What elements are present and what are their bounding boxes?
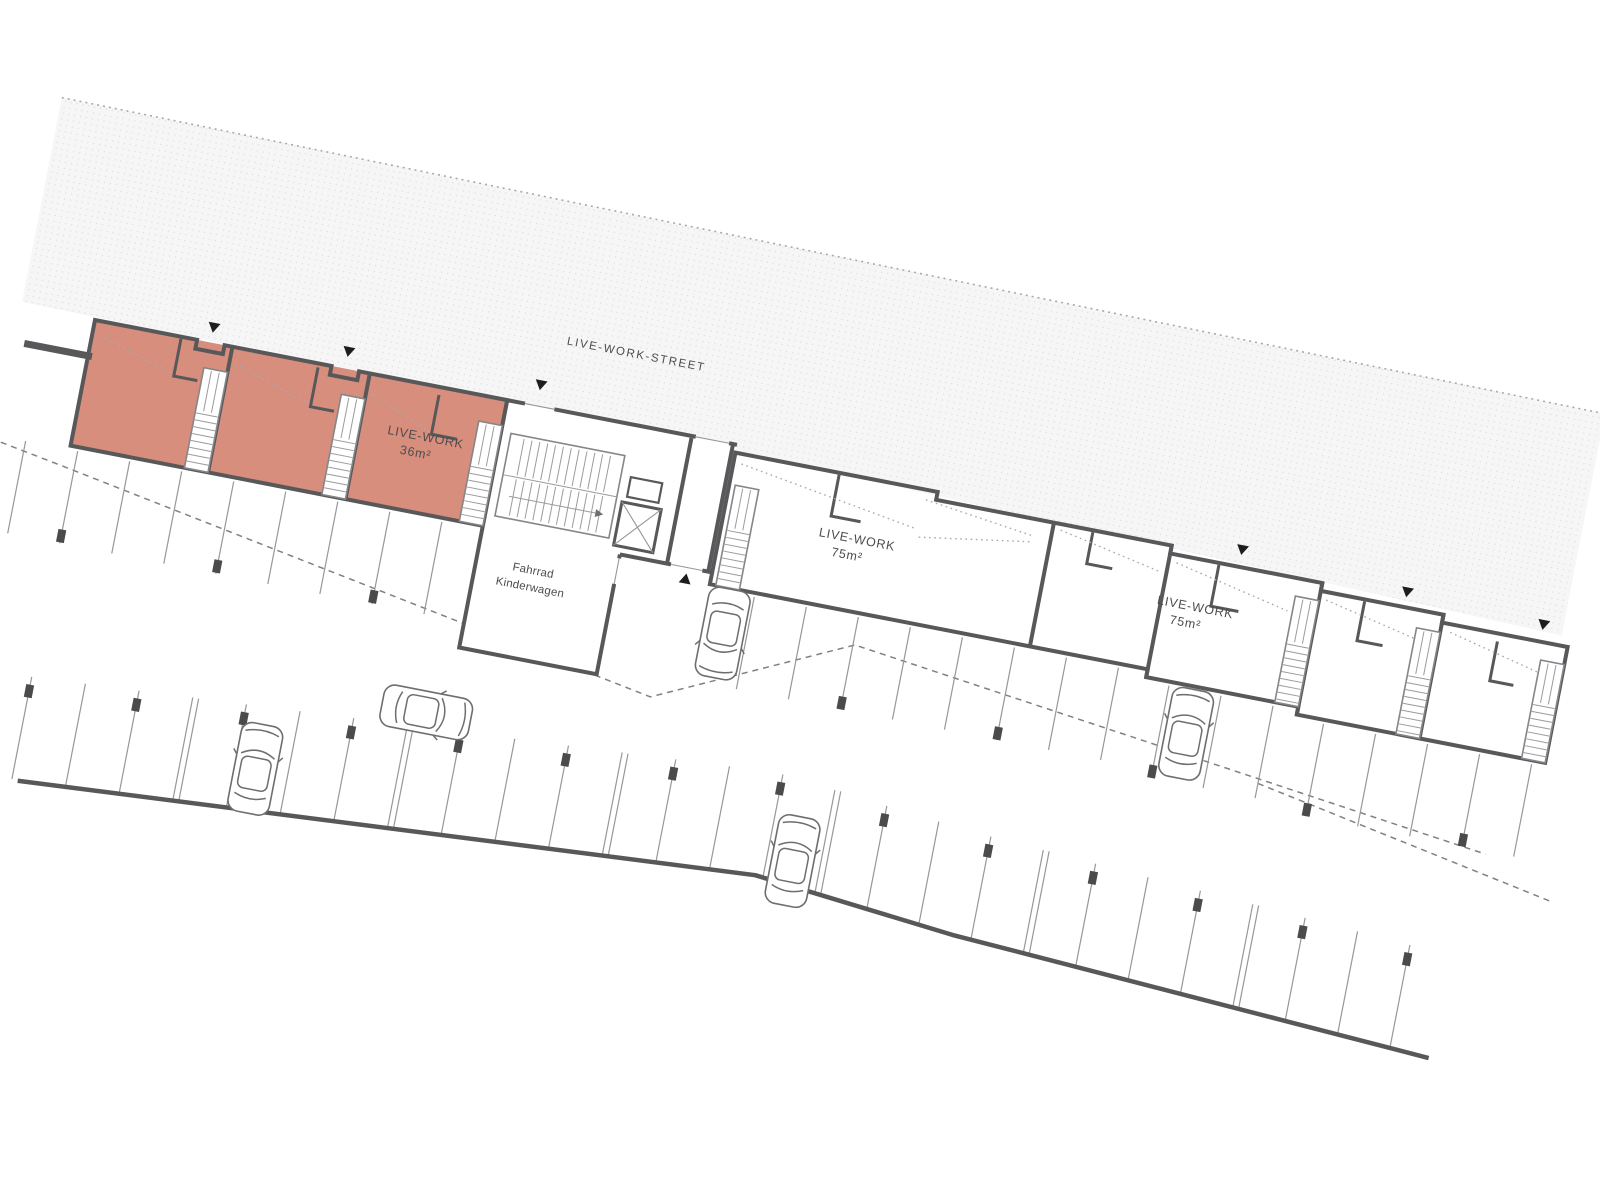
parking-stall-line <box>944 637 962 729</box>
parking-stall-line <box>66 684 86 786</box>
unit-75b-label: LIVE-WORK 75m² <box>1153 593 1235 638</box>
wheel-stop <box>983 844 993 858</box>
parking-stall-line <box>1029 851 1049 953</box>
parking-stall-line <box>1101 668 1119 760</box>
unit-75a-area: 75m² <box>830 545 864 565</box>
parking-stall-line <box>1358 734 1376 826</box>
parking-stall-line <box>821 791 841 893</box>
wheel-stop <box>24 684 34 698</box>
parking-stall-line <box>710 766 730 868</box>
parked-car <box>1153 685 1219 783</box>
parking-stall-line <box>1049 658 1067 750</box>
parking-stall-line <box>840 617 858 709</box>
parking-stall-line <box>394 726 414 828</box>
parking-stall-line <box>1255 706 1273 798</box>
wheel-stop <box>1458 833 1468 847</box>
parking-stall-line <box>60 451 78 543</box>
parking-stall-line <box>1239 905 1259 1007</box>
parking-stall-line <box>320 502 338 594</box>
parking-stall-line <box>919 822 939 924</box>
floor-plan-page: LIVE-WORK-STREET LIVE-WORK 36m² <box>0 0 1600 1200</box>
wheel-stop <box>368 590 378 604</box>
parking-stall-line <box>1128 877 1148 979</box>
parking-stall-line <box>1338 931 1358 1033</box>
parking-stall-line <box>112 461 130 553</box>
stair-shaft <box>1396 628 1440 739</box>
core-floor <box>459 400 737 692</box>
parking-stall-line <box>268 492 286 584</box>
parking-stall-line <box>1023 850 1043 952</box>
wheel-stop <box>346 725 356 739</box>
site-boundary-line <box>17 734 1438 1058</box>
rotated-plan-group: LIVE-WORK-STREET LIVE-WORK 36m² <box>0 97 1600 1076</box>
wheel-stop <box>1192 898 1202 912</box>
parking-stall-line <box>179 699 199 801</box>
parking-stall-line <box>788 607 806 699</box>
parking-stall-line <box>495 739 515 841</box>
unit-staircase <box>1275 596 1319 707</box>
overhang-dashed-line <box>1246 783 1562 901</box>
parking-stall-line <box>608 754 628 856</box>
core-block: Fahrrad Kinderwagen <box>459 400 737 692</box>
wheel-stop <box>993 726 1003 740</box>
wheel-stop <box>668 766 678 780</box>
unit-75b-area: 75m² <box>1168 613 1202 633</box>
wheel-stop <box>131 698 141 712</box>
wheel-stop <box>1088 871 1098 885</box>
wheel-stop <box>212 559 222 573</box>
parking-stall-line <box>1410 744 1428 836</box>
elevator <box>614 502 662 553</box>
parking-stall-line <box>388 725 408 827</box>
floor-plan-drawing: LIVE-WORK-STREET LIVE-WORK 36m² <box>0 0 1600 1200</box>
parking-stall-line <box>8 441 26 533</box>
parking-stall-line <box>892 627 910 719</box>
parking-stall-line <box>372 512 390 604</box>
unit-75a-label: LIVE-WORK 75m² <box>815 525 897 570</box>
wheel-stop <box>453 739 463 753</box>
parked-car <box>377 679 475 745</box>
parking-stall-line <box>1233 904 1253 1006</box>
parking-stall-line <box>424 522 442 614</box>
wheel-stop <box>1297 925 1307 939</box>
wheel-stop <box>56 529 66 543</box>
parking-stall-line <box>173 697 193 799</box>
unit-staircase <box>1396 628 1440 739</box>
site-wall-stub <box>24 340 93 360</box>
entrance-arrow-up <box>679 572 693 584</box>
wheel-stop <box>1302 803 1312 817</box>
wheel-stop <box>836 696 846 710</box>
stair-shaft <box>1275 596 1319 707</box>
parking-stall-line <box>164 471 182 563</box>
unit-staircase <box>1522 660 1565 763</box>
wheel-stop <box>1402 952 1412 966</box>
parked-car <box>690 585 756 683</box>
stair-shaft <box>1522 660 1565 763</box>
parking-stall-line <box>602 752 622 854</box>
parking-stall-line <box>1462 754 1480 846</box>
parking-stall-line <box>280 711 300 813</box>
wheel-stop <box>561 753 571 767</box>
parking-stall-line <box>1514 764 1532 856</box>
wheel-stop <box>775 782 785 796</box>
wheel-stop <box>1147 764 1157 778</box>
parked-car <box>222 720 288 818</box>
parking-stall-line <box>1306 724 1324 816</box>
wheel-stop <box>879 813 889 827</box>
